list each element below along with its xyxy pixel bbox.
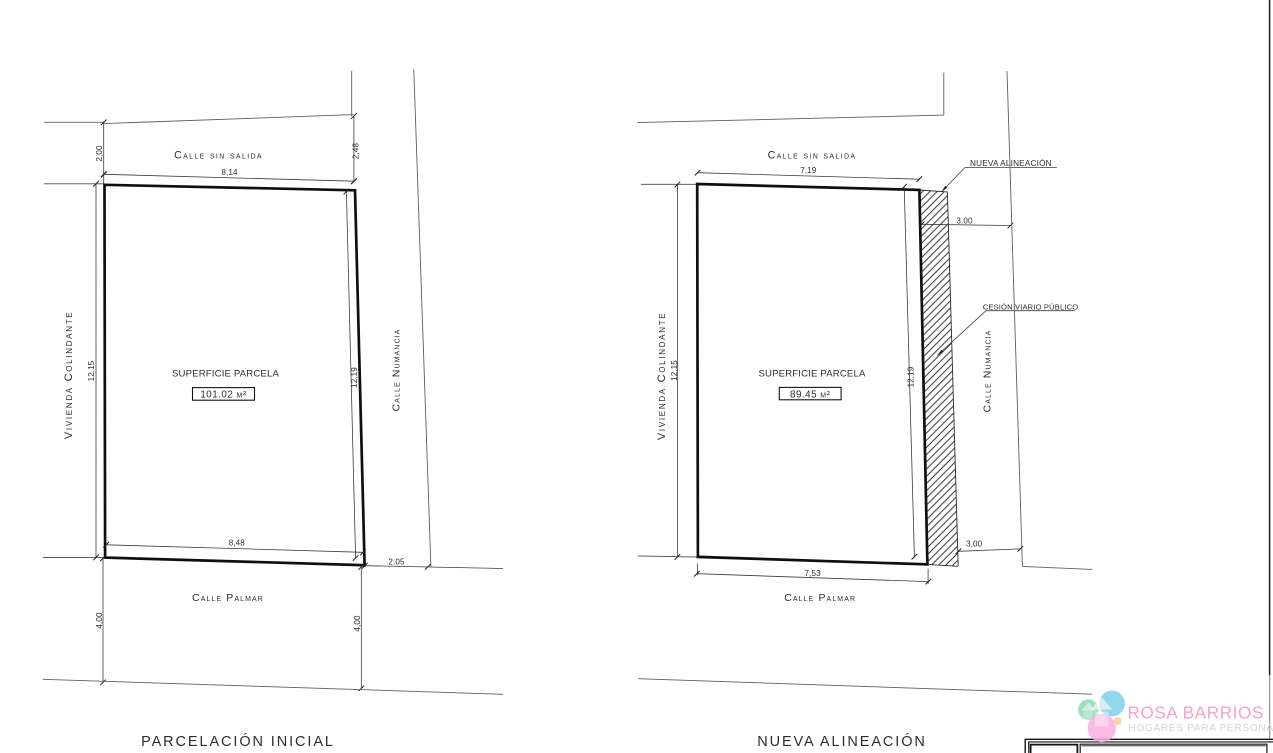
svg-text:12.15: 12.15 [670, 360, 679, 381]
svg-text:4,00: 4,00 [353, 615, 362, 632]
svg-text:CESIÓN VIARIO PÚBLICO: CESIÓN VIARIO PÚBLICO [983, 302, 1079, 311]
svg-text:7,53: 7,53 [805, 569, 822, 578]
svg-text:4,00: 4,00 [95, 612, 104, 629]
svg-text:Vivienda Colindante: Vivienda Colindante [656, 312, 668, 440]
svg-text:ROSA BARRIOS: ROSA BARRIOS [1128, 704, 1264, 723]
svg-text:101.02 m²: 101.02 m² [200, 390, 247, 401]
svg-text:Calle sin salida: Calle sin salida [768, 150, 857, 162]
svg-text:NUEVA ALINEACIÓN: NUEVA ALINEACIÓN [757, 733, 927, 750]
svg-text:HOGARES PARA PERSONAS: HOGARES PARA PERSONAS [1129, 723, 1273, 734]
svg-text:8,48: 8,48 [229, 538, 246, 547]
svg-text:Vivienda Colindante: Vivienda Colindante [63, 311, 75, 439]
svg-text:89.45 m²: 89.45 m² [790, 389, 831, 400]
svg-text:Calle Numancia: Calle Numancia [982, 330, 994, 413]
svg-text:Calle Numancia: Calle Numancia [391, 329, 403, 412]
svg-text:SUPERFICIE PARCELA: SUPERFICIE PARCELA [172, 369, 279, 380]
svg-text:2,48: 2,48 [352, 143, 361, 160]
svg-text:2.05: 2.05 [388, 558, 405, 567]
svg-text:12,19: 12,19 [907, 366, 916, 387]
svg-text:7,19: 7,19 [800, 166, 817, 175]
svg-text:Calle Palmar: Calle Palmar [192, 592, 264, 604]
svg-text:12.15: 12.15 [87, 360, 96, 381]
svg-text:Calle Palmar: Calle Palmar [784, 592, 856, 604]
svg-text:8,14: 8,14 [221, 168, 238, 177]
svg-text:3,00: 3,00 [966, 539, 983, 548]
svg-text:3.00: 3.00 [956, 216, 973, 225]
svg-text:12,19: 12,19 [350, 367, 359, 388]
svg-text:PARCELACIÓN INICIAL: PARCELACIÓN INICIAL [141, 733, 335, 750]
svg-text:Calle sin salida: Calle sin salida [174, 150, 263, 162]
svg-text:NUEVA ALINEACIÓN: NUEVA ALINEACIÓN [970, 158, 1052, 168]
svg-text:SUPERFICIE PARCELA: SUPERFICIE PARCELA [758, 369, 865, 380]
svg-text:2,00: 2,00 [95, 145, 104, 162]
